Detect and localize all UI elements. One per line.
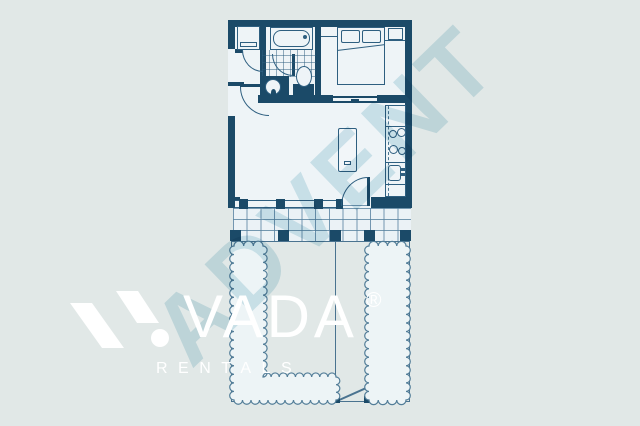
wall-left-lower (228, 116, 235, 208)
wall-right (405, 20, 412, 208)
deck-post (230, 230, 241, 241)
stove-burner (389, 145, 398, 154)
wardrobe-shelf-right (385, 40, 405, 41)
pillow (341, 30, 360, 43)
kitchen-sink (388, 165, 401, 181)
pillow (362, 30, 381, 43)
window-mullion (239, 199, 248, 209)
kitchen-tap (401, 173, 405, 176)
wardrobe-shelf-left (321, 36, 337, 37)
window-mullion (276, 199, 285, 209)
sliding-door-handle (351, 99, 359, 102)
wall-bottom-right (371, 197, 412, 208)
wall-left-upper (228, 20, 235, 49)
floorplan-image: ADVENT VADA ® RENTALS (0, 0, 640, 426)
window-mullion (314, 199, 323, 209)
vada-logo-mark (65, 285, 175, 355)
vanity-tap (271, 89, 276, 96)
stove-burner (389, 130, 397, 138)
stove-burner (398, 147, 406, 155)
wall-bedroom-bottom-left (315, 95, 333, 103)
deck-post (278, 230, 289, 241)
wall-bedroom-bottom-right (377, 95, 412, 103)
logo-stroke-right (116, 291, 159, 323)
washer-door (240, 42, 257, 47)
brand-tagline: RENTALS (156, 360, 302, 378)
logo-dot (151, 329, 169, 347)
stove-burner (397, 128, 406, 137)
deck-post (364, 230, 375, 241)
kitchen-tap (401, 168, 405, 171)
island (338, 128, 357, 172)
brand-name: VADA (183, 287, 358, 347)
window-band (235, 200, 343, 208)
deck-post (330, 230, 341, 241)
bathtub-faucet (303, 35, 307, 39)
wardrobe-right (388, 28, 403, 40)
logo-stroke-left (70, 303, 124, 348)
deck-post (400, 230, 411, 241)
registered-trademark-symbol: ® (366, 289, 381, 313)
hedge-right (365, 241, 411, 404)
toilet-bowl (296, 66, 312, 87)
island-sink (344, 161, 351, 165)
